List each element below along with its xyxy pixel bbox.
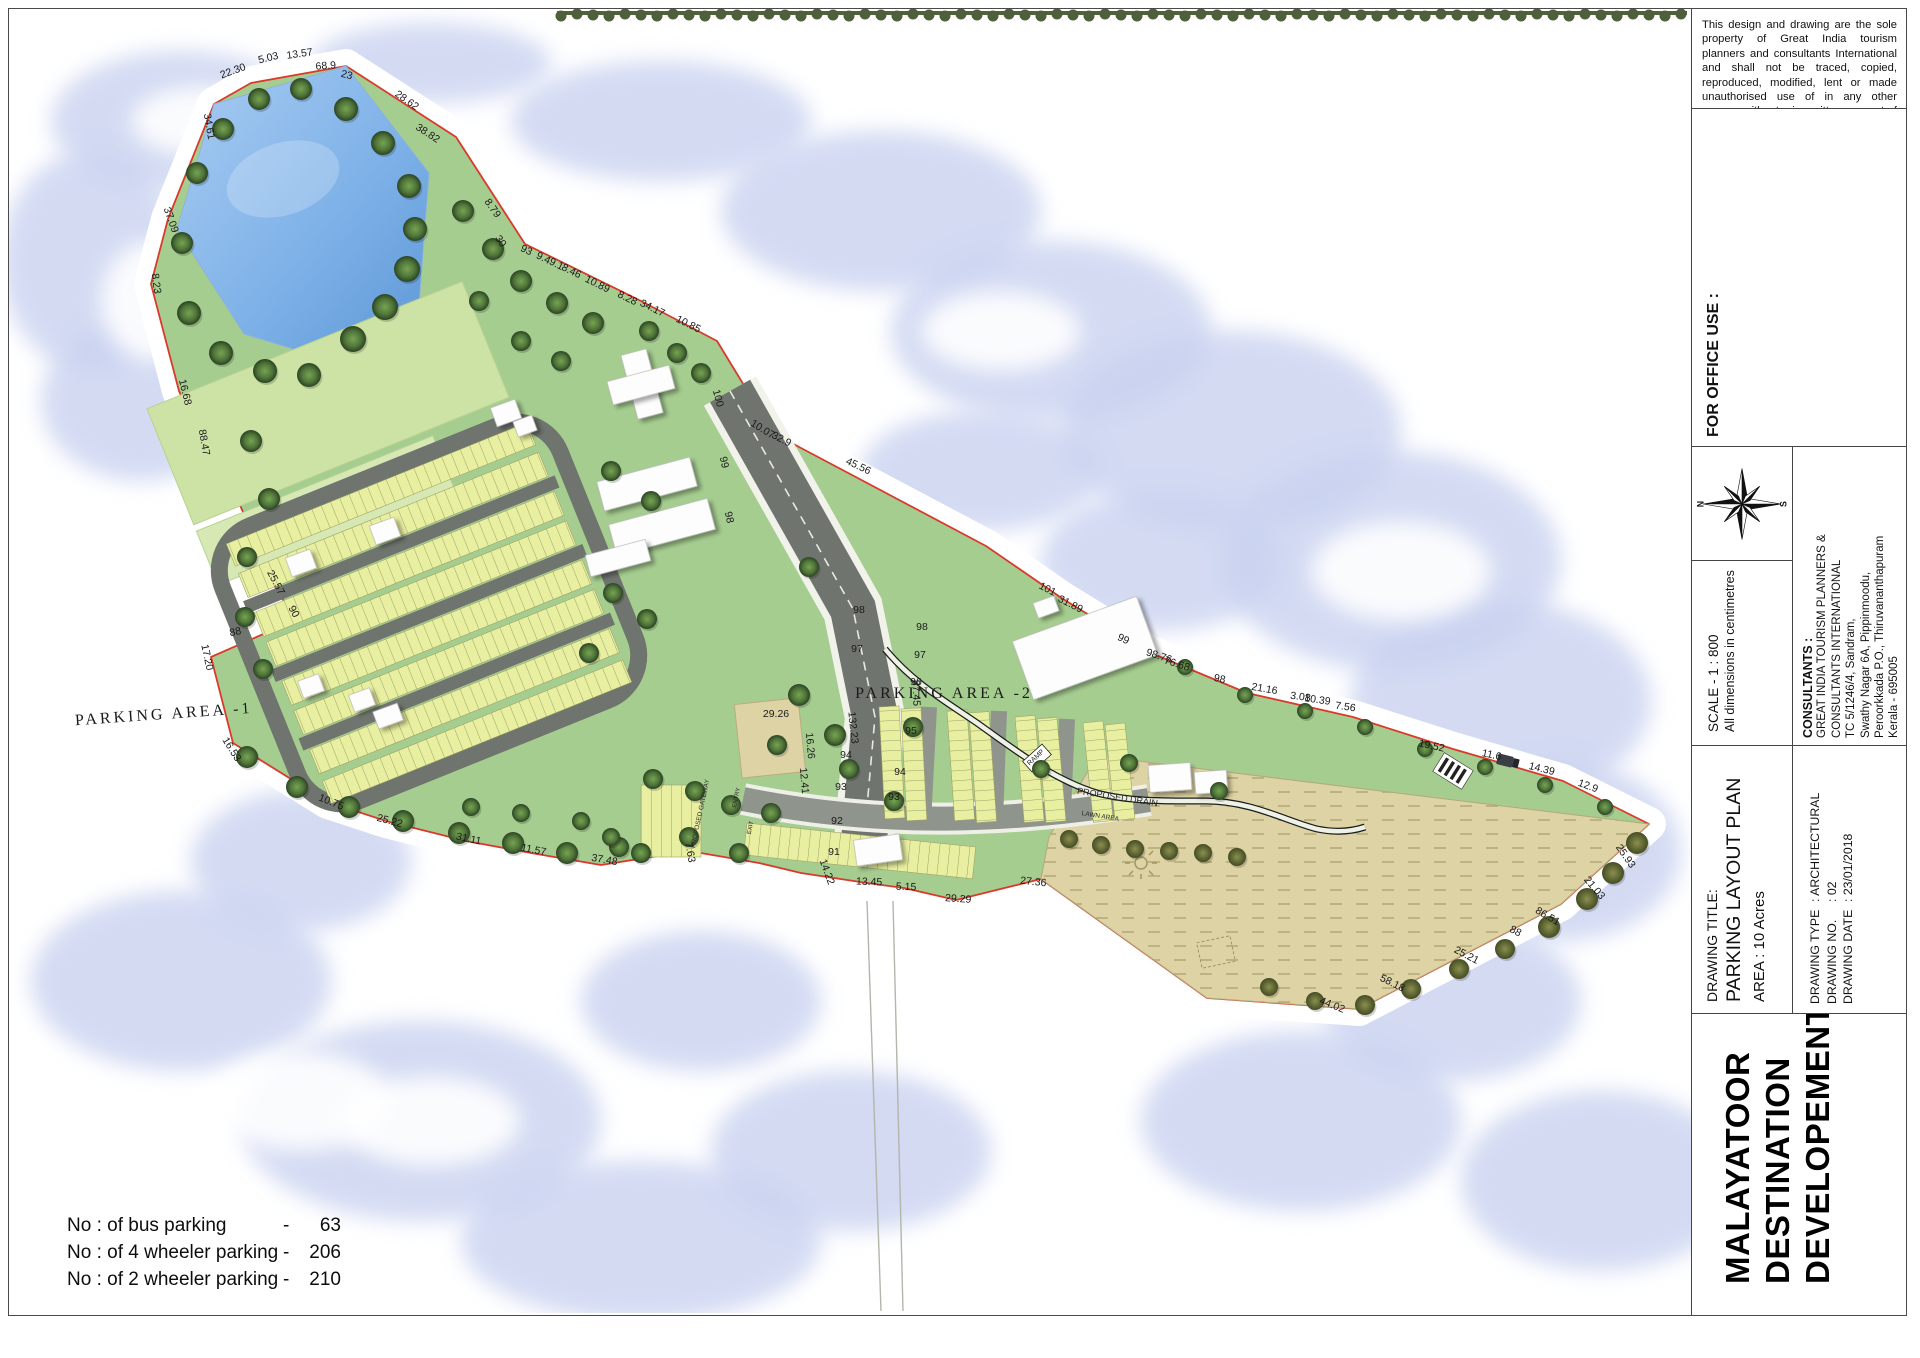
tree	[237, 547, 257, 567]
cloud-highlight	[921, 291, 1081, 371]
tree	[582, 312, 604, 334]
hedge-shrub	[620, 9, 631, 20]
hedge-shrub	[940, 11, 951, 22]
consultants-line: Peroorkkada P.O., Thiruvananthapuram	[1873, 447, 1887, 738]
tree	[799, 557, 819, 577]
meta-value: : 02	[1824, 881, 1841, 902]
top-hedge	[556, 9, 1688, 22]
tree	[290, 78, 312, 100]
project-name-line: DESTINATION	[1758, 1014, 1798, 1284]
consultants-line: TC 5/1246/4, Sandram,	[1844, 447, 1858, 738]
hedge-shrub	[1052, 9, 1063, 20]
stat-label: No : of 4 wheeler parking	[67, 1239, 283, 1266]
meta-value: : 23/01/2018	[1840, 834, 1857, 902]
road-marker: 94	[894, 766, 906, 778]
tree	[551, 351, 571, 371]
tree	[1602, 862, 1624, 884]
hedge-shrub	[1532, 9, 1543, 20]
hedge-shrub	[716, 9, 727, 20]
tree	[258, 488, 280, 510]
tree	[512, 804, 530, 822]
tree	[1355, 995, 1375, 1015]
road-marker: 98	[916, 621, 928, 633]
compass-rose-box: N S	[1692, 447, 1792, 561]
hedge-shrub	[1292, 9, 1303, 20]
tree	[643, 769, 663, 789]
tree	[452, 200, 474, 222]
title-block: This design and drawing are the sole pro…	[1691, 9, 1907, 1315]
meta-value: : ARCHITECTURAL	[1807, 793, 1824, 902]
parking-area-label: PARKING AREA -2	[855, 685, 1033, 702]
dimensions-note: All dimensions in centimetres	[1721, 561, 1737, 746]
tree	[372, 294, 398, 320]
drawing-title: PARKING LAYOUT PLAN	[1720, 746, 1746, 1014]
tree	[1060, 830, 1078, 848]
tree	[235, 607, 255, 627]
consultants-line: GREAT INDIA TOURISM PLANNERS &	[1815, 447, 1829, 738]
parking-statistics: No : of bus parking - 63 No : of 4 wheel…	[67, 1212, 341, 1293]
page: { "title_block": { "disclaimer": "This d…	[0, 0, 1920, 1358]
hedge-shrub	[1660, 11, 1671, 22]
hedge-shrub	[684, 10, 695, 21]
tree	[729, 843, 749, 863]
drawing-no-row: DRAWING NO. : 02	[1824, 746, 1841, 1004]
drawing-title-label: DRAWING TITLE:	[1692, 746, 1720, 1014]
project-title-box: MALAYATOOR DESTINATION DEVELOPEMENT	[1692, 1014, 1907, 1314]
stat-dash: -	[283, 1239, 299, 1266]
hedge-shrub	[700, 11, 711, 22]
boundary-dimension: 29.29	[945, 892, 972, 906]
tree	[240, 430, 262, 452]
boundary-dimension: 16.26	[803, 732, 817, 759]
hedge-shrub	[1420, 11, 1431, 22]
tree	[1449, 959, 1469, 979]
drawing-meta-box: DRAWING TYPE : ARCHITECTURAL DRAWING NO.…	[1793, 746, 1907, 1013]
tree	[511, 331, 531, 351]
hedge-shrub	[1388, 9, 1399, 20]
tree	[767, 735, 787, 755]
tree	[631, 843, 651, 863]
boundary-dimension: 5.15	[896, 881, 917, 894]
hedge-shrub	[1212, 10, 1223, 21]
hedge-shrub	[764, 9, 775, 20]
hedge-shrub	[972, 10, 983, 21]
tree	[397, 174, 421, 198]
hedge-shrub	[1308, 10, 1319, 21]
tree	[248, 88, 270, 110]
cloud-blob	[581, 931, 821, 1071]
stat-label: No : of 2 wheeler parking	[67, 1266, 283, 1293]
hedge-shrub	[1484, 9, 1495, 20]
hedge-shrub	[876, 10, 887, 21]
compass-north-label: N	[1696, 500, 1705, 506]
consultants-box: CONSULTANTS : GREAT INDIA TOURISM PLANNE…	[1793, 447, 1907, 745]
stat-4wheeler-parking: No : of 4 wheeler parking - 206	[67, 1239, 341, 1266]
tree	[641, 491, 661, 511]
consultants-line: Kerala - 695005	[1887, 447, 1901, 738]
hedge-shrub	[1404, 10, 1415, 21]
hedge-shrub	[1516, 11, 1527, 22]
boundary-dimension: 68.9	[315, 59, 336, 72]
hedge-shrub	[1084, 11, 1095, 22]
stat-value: 63	[299, 1212, 341, 1239]
disclaimer-text: This design and drawing are the sole pro…	[1692, 9, 1907, 109]
tree	[788, 684, 810, 706]
stat-value: 210	[299, 1266, 341, 1293]
hedge-shrub	[668, 9, 679, 20]
hedge-shrub	[1452, 10, 1463, 21]
hedge-shrub	[1324, 11, 1335, 22]
tree	[761, 803, 781, 823]
hedge-shrub	[1164, 10, 1175, 21]
tree	[286, 776, 308, 798]
tree	[691, 363, 711, 383]
disclaimer-box: This design and drawing are the sole pro…	[1692, 9, 1907, 109]
stat-dash: -	[283, 1212, 299, 1239]
building	[1148, 763, 1192, 793]
compass-rose-icon: N S	[1696, 452, 1788, 556]
hedge-shrub	[1596, 10, 1607, 21]
hedge-shrub	[1644, 10, 1655, 21]
road-marker: 97	[914, 649, 926, 661]
tree	[209, 341, 233, 365]
stat-label: No : of bus parking	[67, 1212, 283, 1239]
hedge-shrub	[1132, 11, 1143, 22]
hedge-shrub	[1196, 9, 1207, 20]
project-name-line: DEVELOPEMENT	[1798, 1014, 1838, 1284]
hedge-shrub	[1228, 11, 1239, 22]
hedge-shrub	[1180, 11, 1191, 22]
tree	[546, 292, 568, 314]
hedge-shrub	[780, 10, 791, 21]
road-marker: 94	[840, 749, 852, 761]
hedge-shrub	[1468, 11, 1479, 22]
tree	[839, 759, 859, 779]
hedge-shrub	[1100, 9, 1111, 20]
tree	[1210, 782, 1228, 800]
tree	[1092, 836, 1110, 854]
hedge-shrub	[748, 11, 759, 22]
tree	[171, 232, 193, 254]
cloud-highlight	[341, 1076, 521, 1166]
hedge-shrub	[1260, 10, 1271, 21]
road-marker: 97	[851, 643, 863, 655]
meta-label: DRAWING DATE	[1840, 902, 1857, 1004]
cloud-highlight	[1311, 521, 1491, 621]
meta-label: DRAWING TYPE	[1807, 902, 1824, 1004]
road-marker: 93	[835, 781, 847, 793]
hedge-shrub	[1340, 9, 1351, 20]
tree	[603, 583, 623, 603]
hedge-shrub	[556, 11, 567, 22]
hedge-shrub	[1580, 9, 1591, 20]
boundary-dimension: 29.26	[763, 708, 789, 720]
office-use-box: FOR OFFICE USE :	[1692, 109, 1907, 447]
tree	[510, 270, 532, 292]
tree	[1194, 844, 1212, 862]
hedge-shrub	[588, 10, 599, 21]
hedge-shrub	[908, 9, 919, 20]
hedge-shrub	[924, 10, 935, 21]
road-marker: 98	[853, 604, 865, 616]
drawing-date-row: DRAWING DATE : 23/01/2018	[1840, 746, 1857, 1004]
hedge-shrub	[1036, 11, 1047, 22]
tree	[340, 326, 366, 352]
tree	[253, 359, 277, 383]
drawing-info-box: DRAWING TITLE: PARKING LAYOUT PLAN AREA …	[1692, 746, 1907, 1014]
cloud-blob	[711, 1071, 991, 1231]
hedge-shrub	[828, 10, 839, 21]
tree	[403, 217, 427, 241]
hedge-shrub	[652, 11, 663, 22]
hedge-shrub	[1148, 9, 1159, 20]
stat-bus-parking: No : of bus parking - 63	[67, 1212, 341, 1239]
tree	[177, 301, 201, 325]
project-name-line: MALAYATOOR	[1718, 1014, 1758, 1284]
stat-dash: -	[283, 1266, 299, 1293]
tree	[579, 643, 599, 663]
site-plan-canvas: 22.305.0313.5768.92334.6128.6238.828.793…	[9, 9, 1691, 1313]
compass-scale-consultants-box: N S SCALE - 1 : 800 All dimensions in ce…	[1692, 447, 1907, 746]
hedge-shrub	[1548, 10, 1559, 21]
tree	[253, 659, 273, 679]
scale-text: SCALE - 1 : 800	[1692, 561, 1721, 746]
tree	[1597, 799, 1613, 815]
cloud-blob	[1141, 1031, 1461, 1211]
tree	[1477, 759, 1493, 775]
drawing-title-box: DRAWING TITLE: PARKING LAYOUT PLAN AREA …	[1692, 746, 1792, 1013]
hedge-shrub	[956, 9, 967, 20]
tree	[637, 609, 657, 629]
tree	[297, 363, 321, 387]
hedge-shrub	[1628, 9, 1639, 20]
tree	[602, 828, 620, 846]
hedge-shrub	[1500, 10, 1511, 21]
tree	[824, 724, 846, 746]
tree	[1537, 777, 1553, 793]
hedge-shrub	[1564, 11, 1575, 22]
hedge-shrub	[1372, 11, 1383, 22]
boundary-dimension: 13.45	[856, 876, 883, 889]
stat-value: 206	[299, 1239, 341, 1266]
drawing-type-row: DRAWING TYPE : ARCHITECTURAL	[1807, 746, 1824, 1004]
tree	[1357, 719, 1373, 735]
tree	[639, 321, 659, 341]
office-use-label: FOR OFFICE USE :	[1692, 109, 1723, 447]
road-marker: 93	[888, 791, 900, 803]
stat-2wheeler-parking: No : of 2 wheeler parking - 210	[67, 1266, 341, 1293]
hedge-shrub	[1020, 10, 1031, 21]
hedge-shrub	[604, 11, 615, 22]
tree	[462, 798, 480, 816]
cloud-blob	[1461, 1091, 1691, 1271]
hedge-shrub	[844, 11, 855, 22]
tree	[1228, 848, 1246, 866]
hedge-shrub	[796, 11, 807, 22]
hedge-shrub	[988, 11, 999, 22]
hedge-shrub	[1116, 10, 1127, 21]
compass-south-label: S	[1779, 500, 1788, 506]
tree	[1160, 842, 1178, 860]
hedge-shrub	[1244, 9, 1255, 20]
hedge-shrub	[1356, 10, 1367, 21]
hedge-shrub	[892, 11, 903, 22]
meta-label: DRAWING NO.	[1824, 902, 1841, 1004]
hedge-shrub	[1612, 11, 1623, 22]
boundary-dimension: 12.41	[797, 767, 811, 794]
tree	[394, 256, 420, 282]
tree	[1120, 754, 1138, 772]
tree	[469, 291, 489, 311]
drawing-area: AREA : 10 Acres	[1746, 746, 1768, 1014]
hedge-shrub	[860, 9, 871, 20]
tree	[1495, 939, 1515, 959]
hedge-shrub	[812, 9, 823, 20]
tree	[1297, 703, 1313, 719]
consultants-line: Swathy Nagar 6A, Pippinmoodu,	[1859, 447, 1873, 738]
consultants-line: CONSULTANTS INTERNATIONAL	[1830, 447, 1844, 738]
tree	[334, 97, 358, 121]
hedge-shrub	[1276, 11, 1287, 22]
tree	[1260, 978, 1278, 996]
hedge-shrub	[572, 9, 583, 20]
tree	[572, 812, 590, 830]
drawing-sheet: 22.305.0313.5768.92334.6128.6238.828.793…	[8, 8, 1907, 1316]
hedge-shrub	[1004, 9, 1015, 20]
road-marker: 91	[828, 846, 840, 858]
scale-box: SCALE - 1 : 800 All dimensions in centim…	[1692, 561, 1792, 746]
road-marker: 92	[831, 815, 843, 827]
hedge-shrub	[732, 10, 743, 21]
road-marker: 95	[905, 725, 917, 737]
tree	[1126, 840, 1144, 858]
hedge-shrub	[1068, 10, 1079, 21]
tree	[371, 131, 395, 155]
tree	[556, 842, 578, 864]
tree	[186, 162, 208, 184]
hedge-shrub	[1436, 9, 1447, 20]
hedge-shrub	[636, 10, 647, 21]
hedge-shrub	[1676, 9, 1687, 20]
tree	[601, 461, 621, 481]
tree	[667, 343, 687, 363]
consultants-heading: CONSULTANTS :	[1801, 447, 1815, 738]
